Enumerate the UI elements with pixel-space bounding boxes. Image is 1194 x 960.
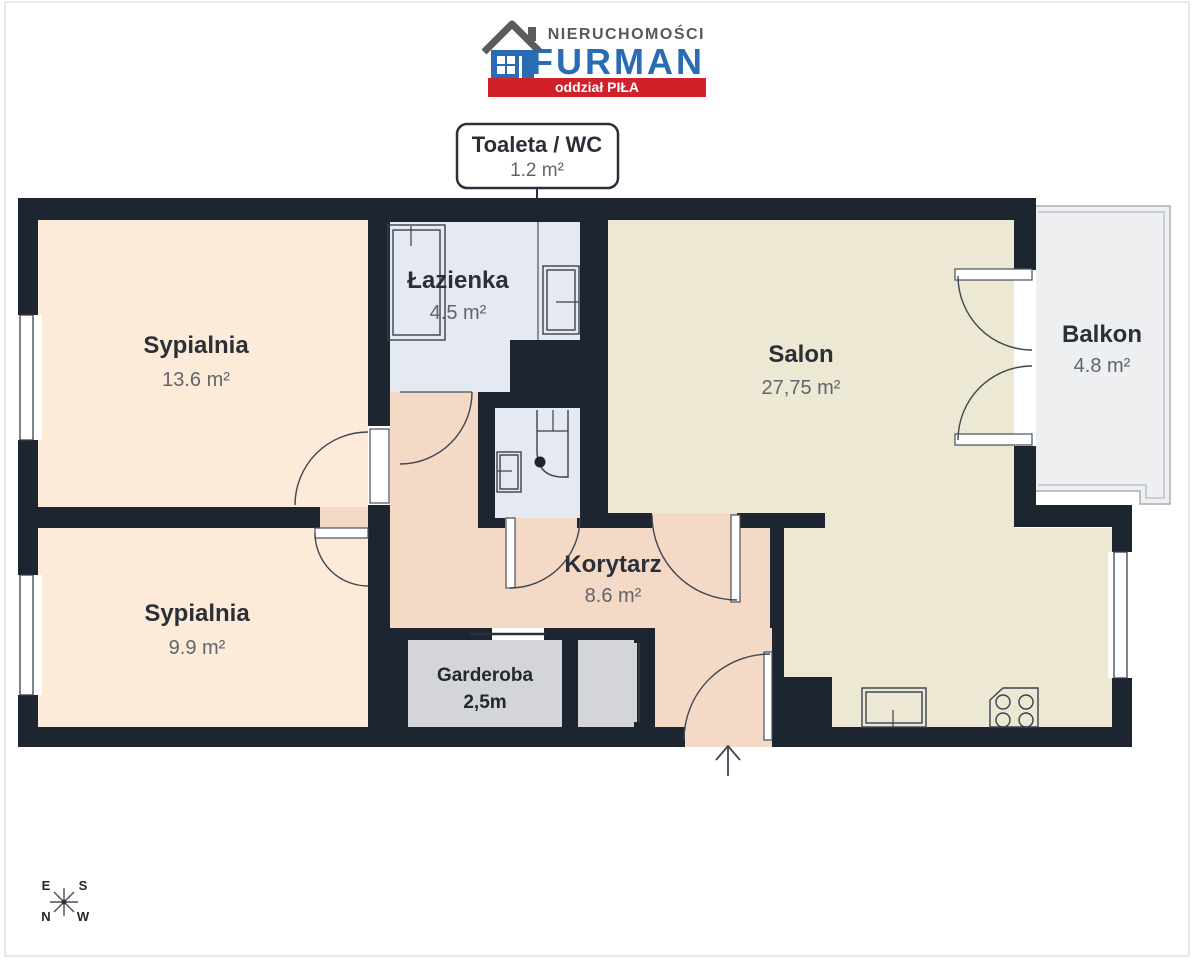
- bedroom1-door-leaf: [370, 429, 389, 503]
- label-sypialnia2-name: Sypialnia: [144, 600, 250, 627]
- balcony-door-leaf-bottom: [955, 434, 1032, 445]
- closet2-fill: [578, 640, 637, 727]
- compass-north: N: [41, 909, 50, 924]
- label-balkon-name: Balkon: [1062, 321, 1142, 348]
- label-garderoba-name: Garderoba: [437, 665, 534, 686]
- salon-kitchen-link-fill: [825, 505, 1014, 528]
- room-sypialnia1-fill: [38, 220, 368, 507]
- balcony-door-opening: [1014, 270, 1036, 446]
- callout-area: 1.2 m²: [510, 160, 564, 181]
- callout-title: Toaleta / WC: [472, 132, 602, 157]
- corridor-entry-fill: [655, 628, 685, 727]
- closet2-door-tick-bottom: [634, 722, 643, 727]
- kitchen-fill: [784, 528, 1112, 727]
- wall-entry-pier: [770, 677, 832, 727]
- bedroom2-door-threshold: [320, 507, 368, 528]
- label-garderoba-area: 2,5m: [463, 692, 506, 713]
- entrance-door-leaf: [764, 652, 772, 740]
- wall-bedroom2-right: [368, 505, 390, 727]
- floor-plan-page: NIERUCHOMOŚCI FURMAN oddział PIŁA Toalet…: [0, 0, 1194, 960]
- label-salon-area: 27,75 m²: [762, 377, 841, 399]
- wall-balcony-lower: [1014, 446, 1036, 508]
- wall-under-balcony: [1014, 505, 1132, 527]
- wall-top: [18, 198, 1036, 220]
- label-salon-name: Salon: [768, 341, 833, 368]
- label-korytarz-area: 8.6 m²: [585, 585, 642, 607]
- wall-bottom-left: [18, 727, 685, 747]
- compass-rose: E S N W: [41, 878, 90, 924]
- wall-bedroom1-right-upper: [368, 220, 390, 426]
- bedroom2-door-leaf: [315, 528, 368, 538]
- entry-threshold-fill: [685, 628, 772, 747]
- salon-door-leaf: [731, 515, 740, 602]
- bedroom1-window: [20, 315, 33, 440]
- closet2-door-tick-top: [634, 638, 643, 643]
- wall-between-bedrooms: [18, 507, 320, 528]
- compass-south: S: [79, 878, 88, 893]
- room-sypialnia2-fill: [38, 528, 368, 727]
- room-lazienka-fill-lower: [390, 340, 510, 392]
- balcony-door-leaf-top: [955, 269, 1032, 280]
- entrance-arrow-icon: [716, 746, 740, 776]
- corridor-main-fill: [390, 528, 770, 628]
- compass-west: W: [77, 909, 90, 924]
- agency-logo: NIERUCHOMOŚCI FURMAN oddział PIŁA: [484, 24, 706, 97]
- label-sypialnia2-area: 9.9 m²: [169, 637, 226, 659]
- label-balkon-area: 4.8 m²: [1074, 355, 1131, 377]
- label-lazienka-name: Łazienka: [407, 267, 509, 294]
- wc-door-threshold: [505, 518, 577, 528]
- agency-name-main: FURMAN: [531, 41, 705, 82]
- bedroom2-window: [20, 575, 33, 695]
- wc-door-leaf: [506, 518, 515, 588]
- kitchen-window: [1114, 552, 1127, 678]
- branch-label: oddział PIŁA: [555, 79, 639, 95]
- compass-east: E: [42, 878, 51, 893]
- wall-balcony-upper: [1014, 220, 1036, 270]
- label-lazienka-area: 4.5 m²: [430, 302, 487, 324]
- label-sypialnia1-area: 13.6 m²: [162, 369, 230, 391]
- wall-corridor-salon-left: [577, 513, 652, 528]
- label-sypialnia1-name: Sypialnia: [143, 332, 249, 359]
- wall-bottom-right: [772, 727, 1132, 747]
- floor-plan-svg: NIERUCHOMOŚCI FURMAN oddział PIŁA Toalet…: [0, 0, 1194, 960]
- salon-door-threshold: [652, 513, 737, 528]
- label-korytarz-name: Korytarz: [564, 551, 661, 578]
